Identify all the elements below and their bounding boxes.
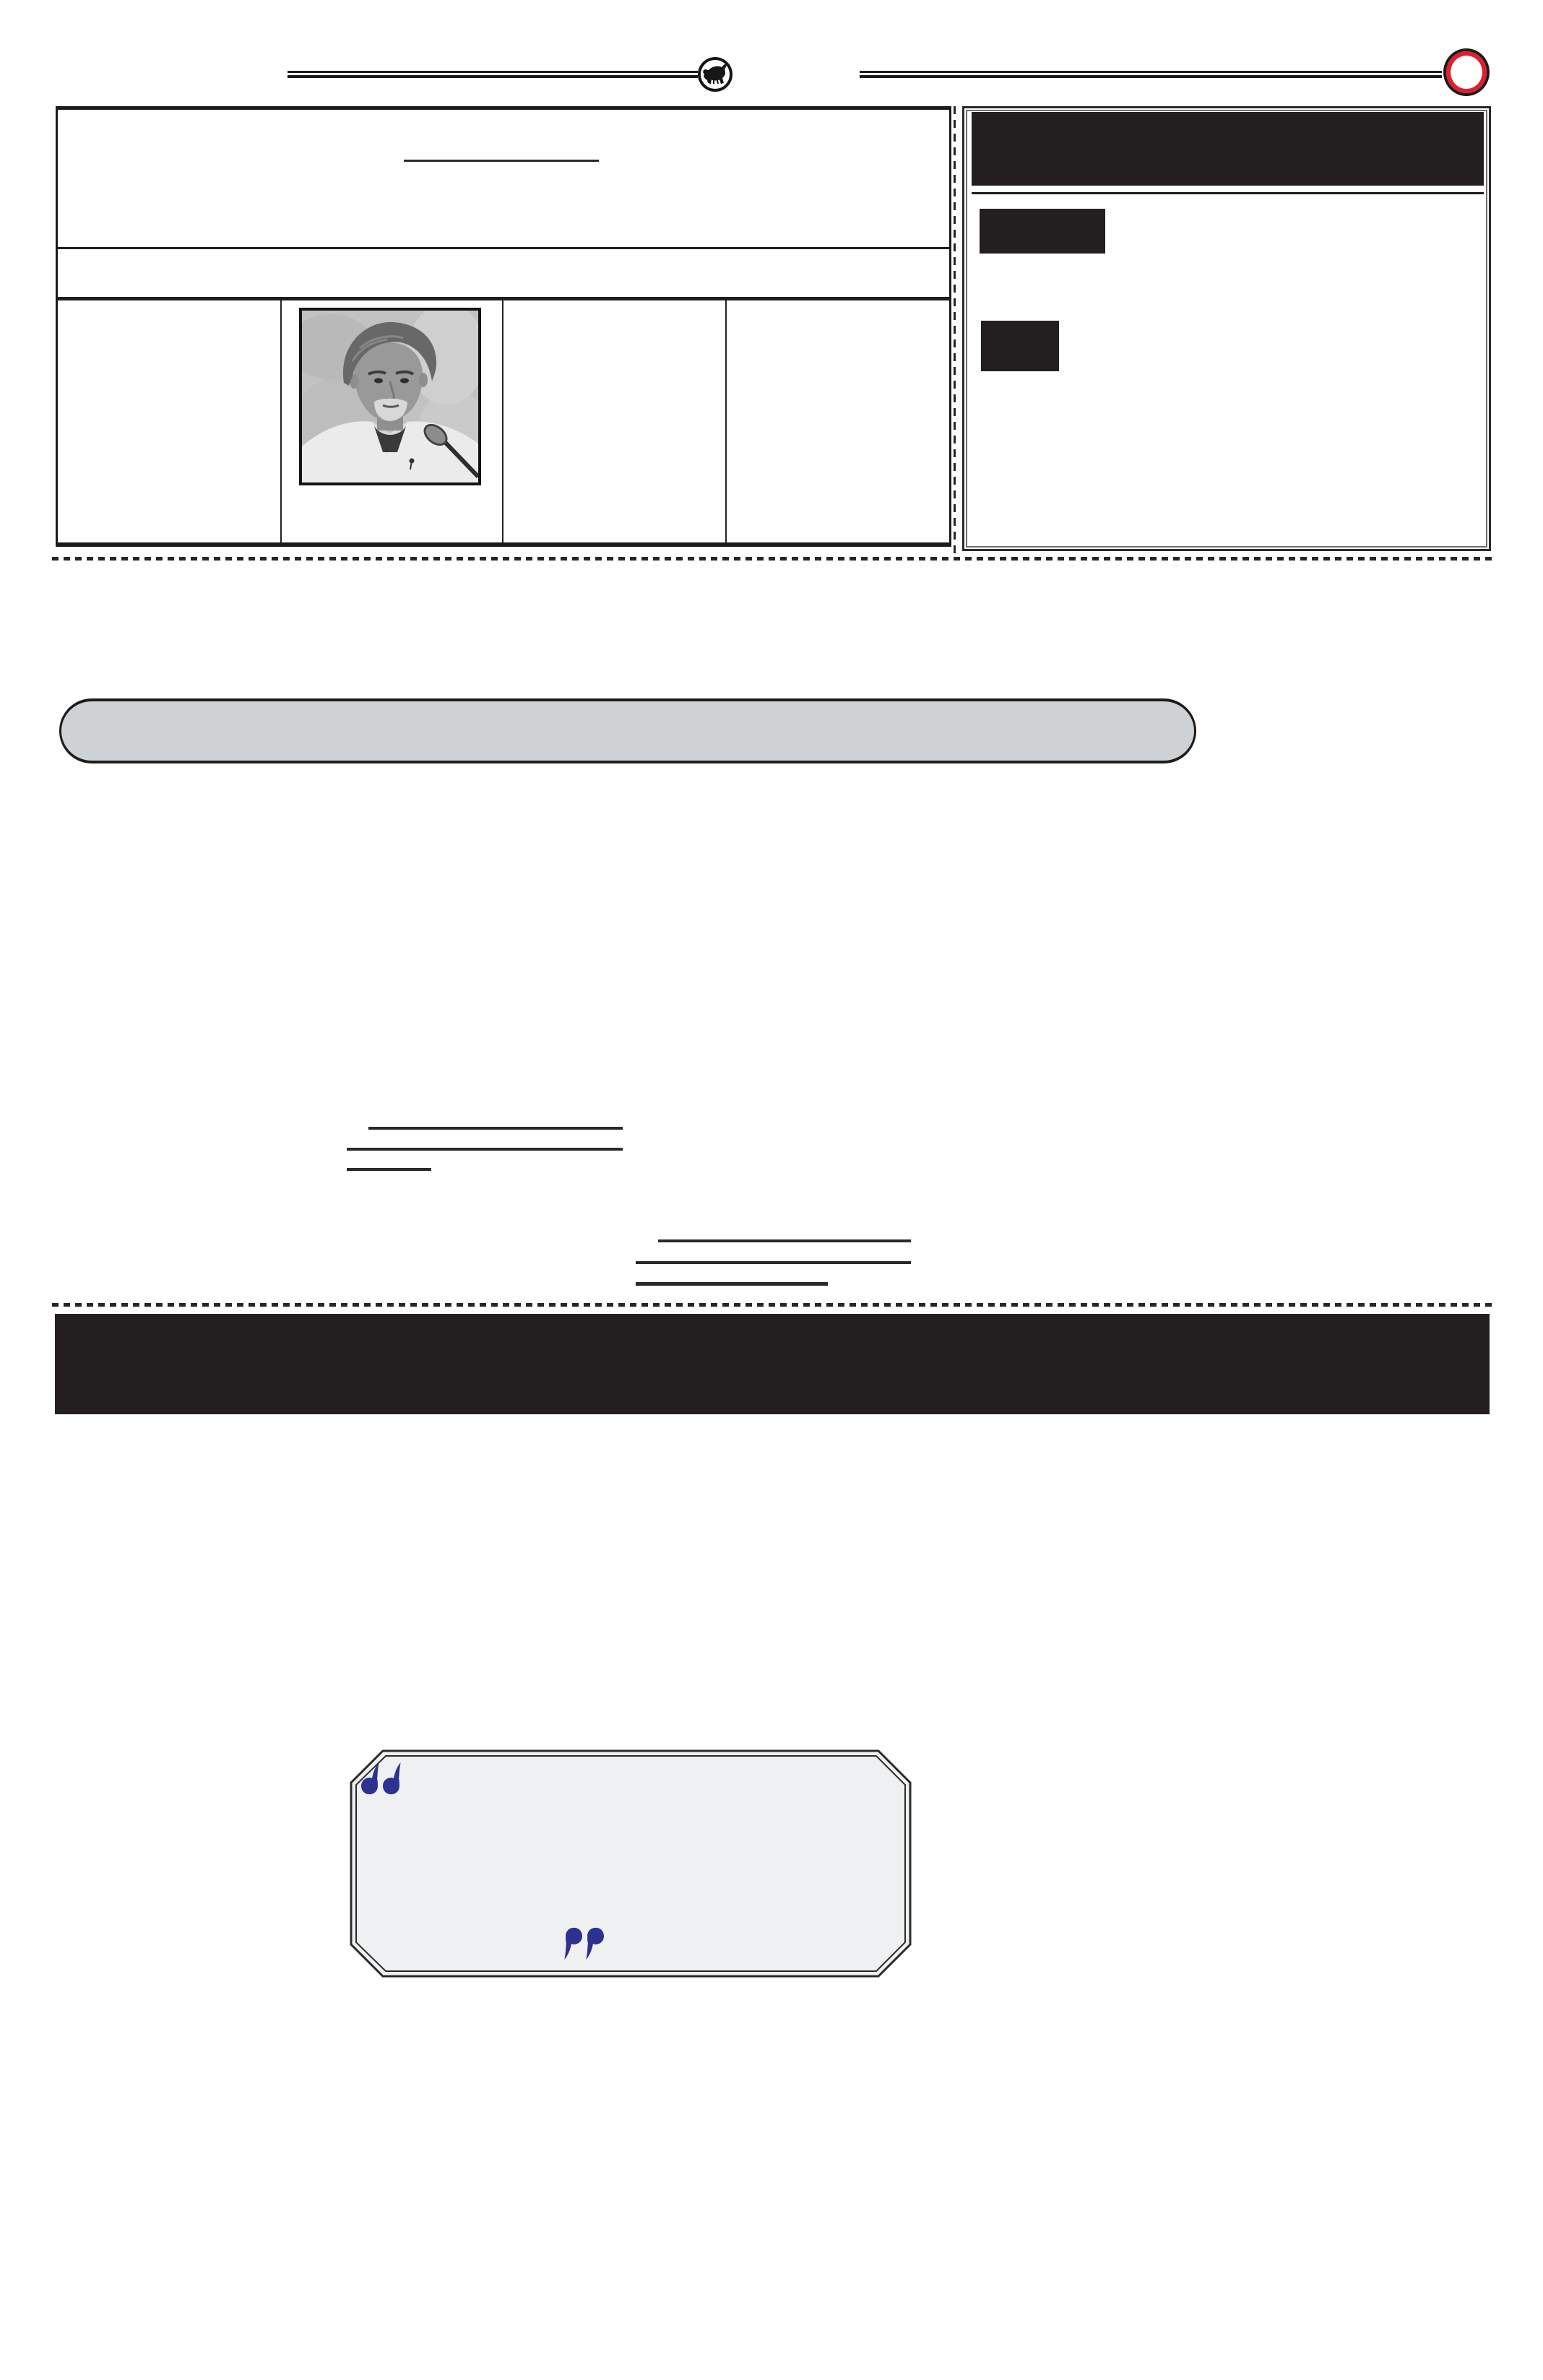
column-rule-2 bbox=[502, 300, 503, 542]
blank-text-line bbox=[658, 1239, 911, 1242]
sidebar-header-rule bbox=[972, 192, 1484, 194]
black-banner bbox=[55, 1314, 1490, 1414]
blank-text-line bbox=[636, 1261, 911, 1264]
sidebar-label-block-1 bbox=[980, 209, 1105, 254]
sidebar-index-box bbox=[962, 106, 1491, 551]
horizontal-dashed-separator-bottom bbox=[52, 1303, 1492, 1307]
masthead-rule-left bbox=[288, 71, 698, 78]
open-quote-icon bbox=[361, 1762, 405, 1795]
blank-text-line bbox=[347, 1148, 623, 1151]
sidebar-label-block-2 bbox=[981, 321, 1059, 371]
newspaper-page bbox=[0, 0, 1543, 2380]
lead-article-box bbox=[56, 106, 951, 547]
article-divider-thin bbox=[58, 247, 949, 249]
article-divider-thick bbox=[58, 297, 949, 300]
sidebar-header-bar bbox=[972, 112, 1484, 186]
masthead-rule-right bbox=[860, 71, 1442, 78]
portrait-photo bbox=[299, 308, 481, 485]
close-quote-icon bbox=[561, 1927, 604, 1960]
vertical-dashed-separator bbox=[954, 106, 956, 559]
blank-text-line bbox=[368, 1127, 623, 1130]
blank-text-line bbox=[347, 1168, 431, 1171]
column-rule-1 bbox=[280, 300, 282, 542]
quote-panel-outer-frame bbox=[351, 1751, 910, 1976]
section-pill-banner bbox=[59, 698, 1196, 763]
pull-quote-panel bbox=[350, 1749, 912, 1978]
horizontal-dashed-separator-top bbox=[52, 557, 1492, 561]
column-rule-3 bbox=[725, 300, 727, 542]
headline-underline bbox=[404, 160, 599, 162]
red-ring-badge-icon bbox=[1443, 48, 1490, 96]
blank-text-line bbox=[636, 1282, 828, 1286]
bull-emblem-icon bbox=[696, 56, 734, 93]
red-ring bbox=[1446, 51, 1487, 93]
